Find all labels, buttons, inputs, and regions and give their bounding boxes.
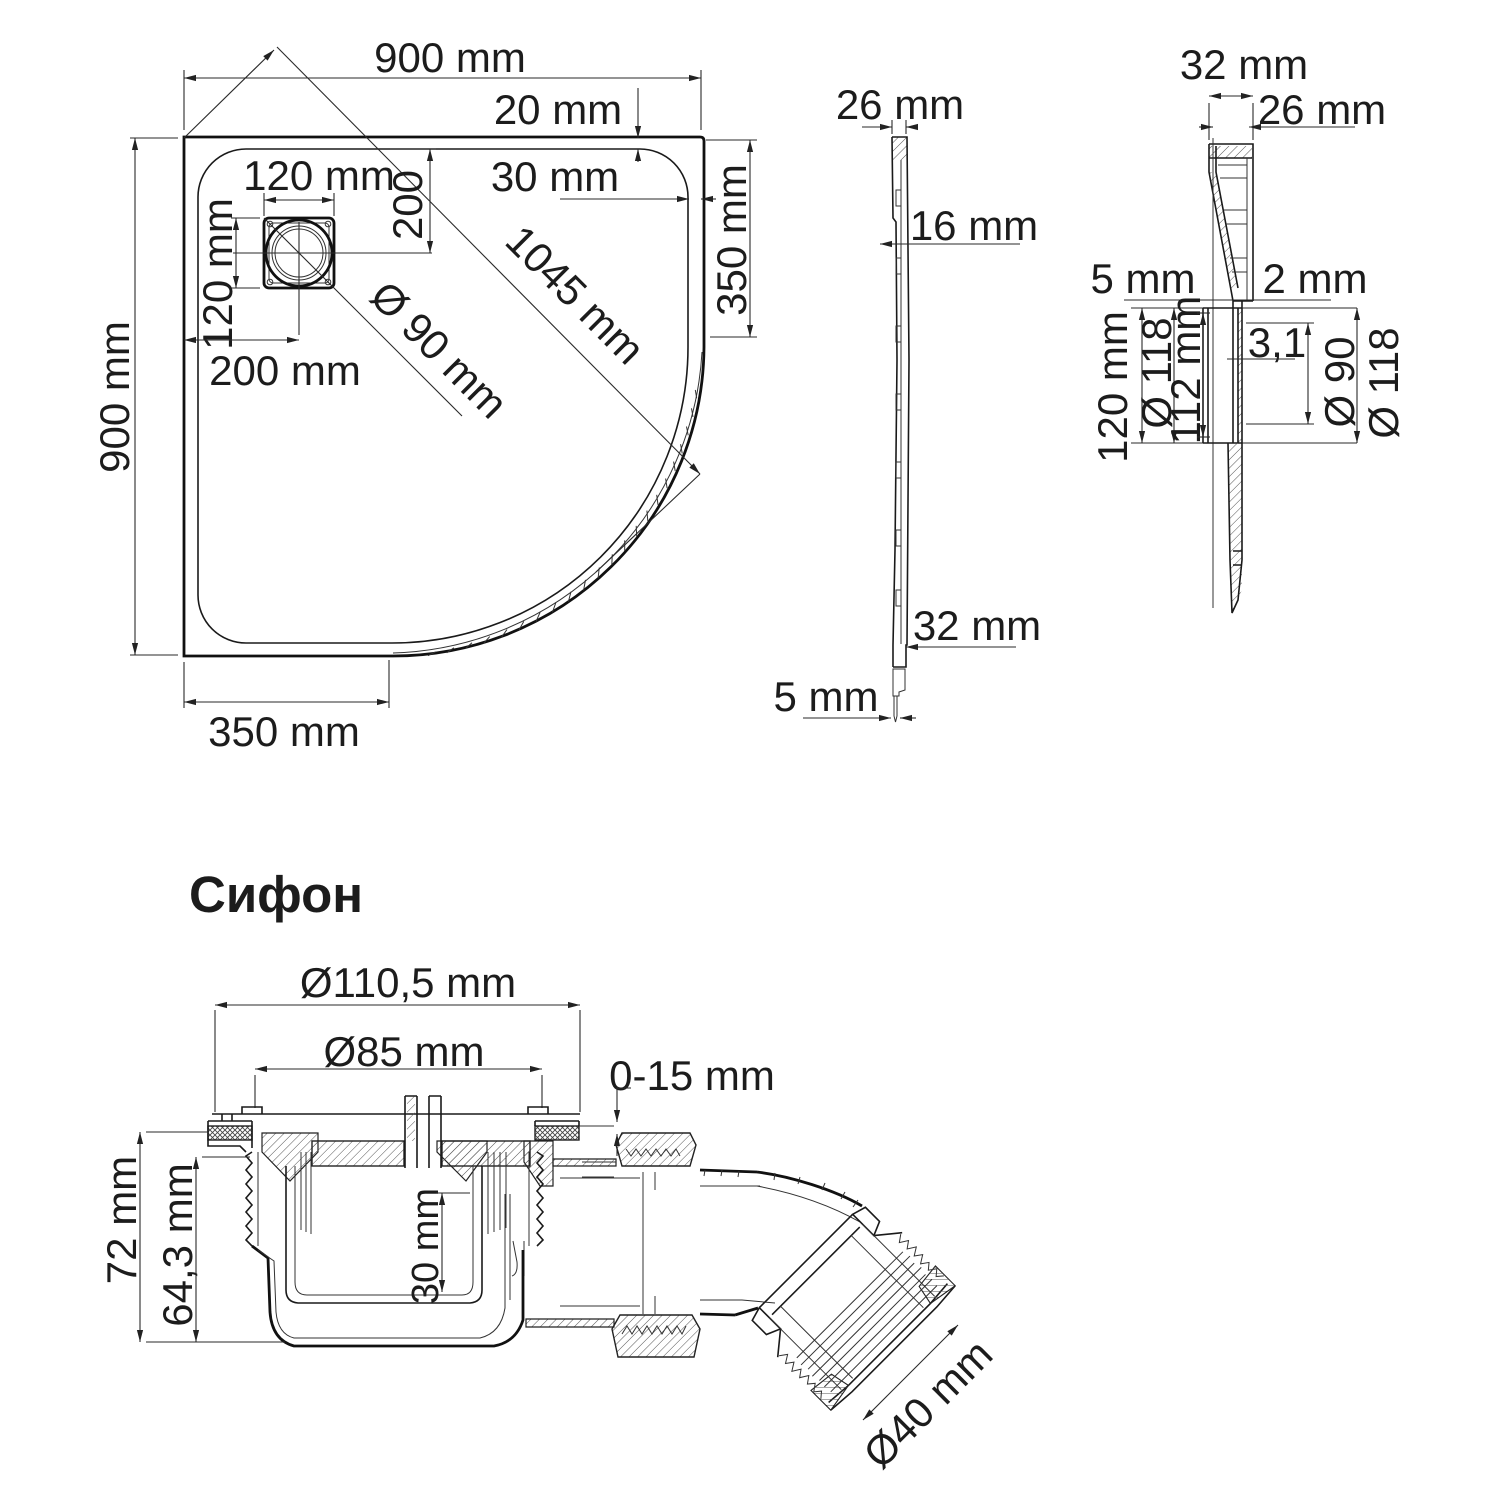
- svg-text:2 mm: 2 mm: [1263, 255, 1368, 302]
- svg-text:26 mm: 26 mm: [836, 81, 964, 128]
- svg-text:120 mm: 120 mm: [1089, 311, 1136, 463]
- svg-text:Ø 90: Ø 90: [1316, 336, 1363, 427]
- svg-text:120 mm: 120 mm: [194, 198, 241, 350]
- svg-text:72 mm: 72 mm: [98, 1156, 145, 1284]
- svg-text:30 mm: 30 mm: [405, 1188, 447, 1304]
- svg-text:5 mm: 5 mm: [1091, 255, 1196, 302]
- svg-text:120 mm: 120 mm: [243, 152, 395, 199]
- svg-text:Ø110,5 mm: Ø110,5 mm: [300, 959, 516, 1006]
- svg-text:900 mm: 900 mm: [374, 34, 526, 81]
- svg-text:64,3 mm: 64,3 mm: [154, 1163, 201, 1326]
- svg-text:30 mm: 30 mm: [491, 153, 619, 200]
- svg-text:200: 200: [384, 170, 431, 240]
- svg-text:26 mm: 26 mm: [1258, 86, 1386, 133]
- svg-text:Ø 118: Ø 118: [1360, 327, 1407, 438]
- svg-text:Ø85 mm: Ø85 mm: [323, 1028, 484, 1075]
- svg-text:16 mm: 16 mm: [910, 202, 1038, 249]
- svg-text:32 mm: 32 mm: [1180, 41, 1308, 88]
- svg-text:32 mm: 32 mm: [913, 602, 1041, 649]
- svg-text:Сифон: Сифон: [189, 866, 363, 923]
- svg-text:5 mm: 5 mm: [774, 673, 879, 720]
- svg-text:350 mm: 350 mm: [208, 708, 360, 755]
- svg-text:350 mm: 350 mm: [708, 164, 755, 316]
- svg-text:0-15 mm: 0-15 mm: [609, 1052, 775, 1099]
- svg-text:900 mm: 900 mm: [91, 321, 138, 473]
- svg-text:200 mm: 200 mm: [209, 347, 361, 394]
- svg-text:112 mm: 112 mm: [1162, 296, 1209, 445]
- svg-text:20 mm: 20 mm: [494, 86, 622, 133]
